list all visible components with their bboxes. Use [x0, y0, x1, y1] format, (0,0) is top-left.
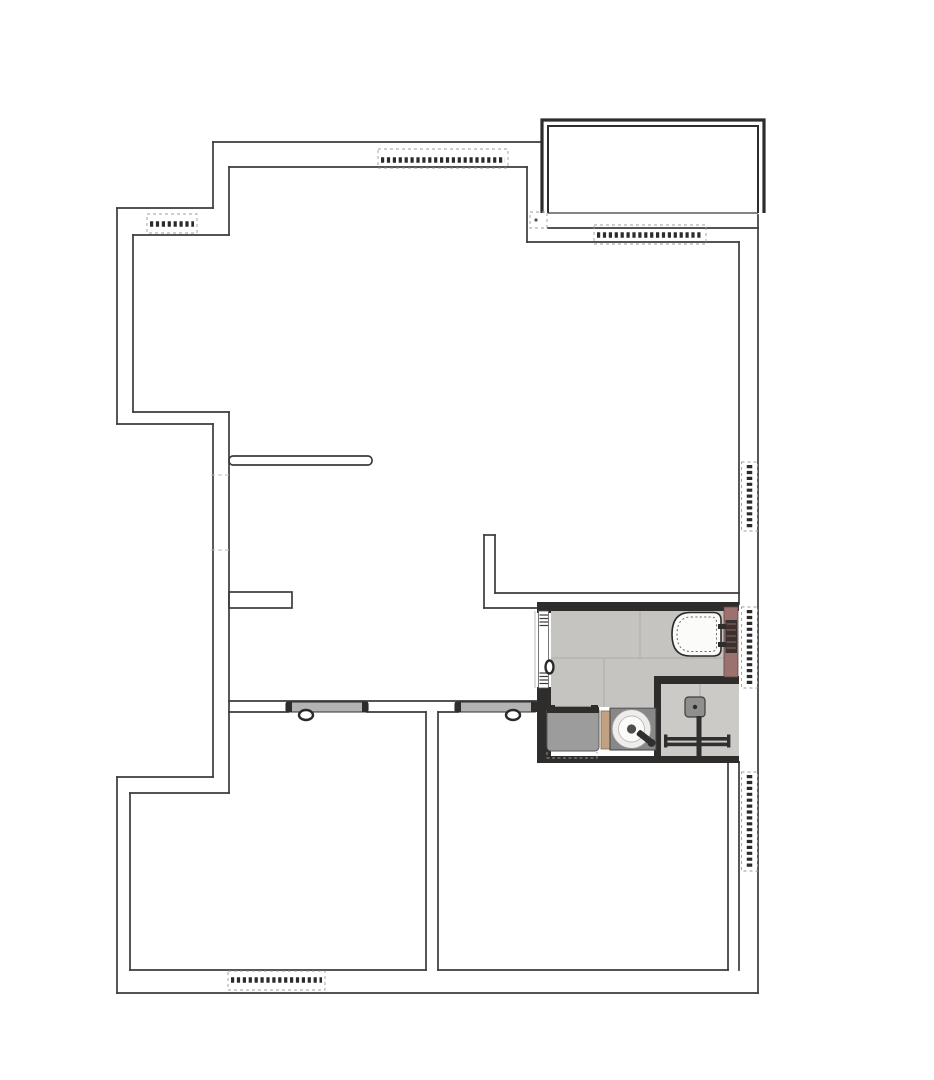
- door-end-cap: [362, 702, 368, 712]
- door-panel[interactable]: [455, 702, 537, 712]
- washing-machine: [547, 707, 599, 751]
- basin-drain: [627, 724, 636, 733]
- door-handle-icon[interactable]: [546, 661, 554, 674]
- door-end-cap: [286, 702, 292, 712]
- floor-plan-canvas: [0, 0, 934, 1080]
- bar-end-bracket: [727, 735, 730, 748]
- wall-joint-marker: [530, 212, 547, 228]
- door-end-cap: [531, 702, 537, 712]
- toilet-bowl: [672, 613, 721, 657]
- door-panel[interactable]: [286, 702, 368, 712]
- annotation-markers: [211, 212, 547, 550]
- window-top-wall: [378, 149, 508, 168]
- bathroom-top-wall-dark-face: [549, 602, 739, 611]
- shower-riser-bar: [697, 716, 702, 756]
- window-right-wall-lower: [742, 772, 758, 871]
- bar-end-bracket: [664, 735, 667, 748]
- floor-plan-drawing: [0, 0, 934, 1080]
- hall-stub-wall: [229, 592, 292, 608]
- door-handle-icon[interactable]: [506, 710, 520, 720]
- window-symbols: [147, 149, 758, 990]
- bathroom-sliding-door[interactable]: [535, 611, 554, 688]
- hall-top-partition: [229, 456, 372, 465]
- window-right-wall-bathroom: [742, 607, 758, 688]
- towel-bar: [666, 743, 728, 747]
- bathroom-bottom-wall: [537, 756, 739, 763]
- wall-joint-dot: [534, 218, 537, 221]
- balcony-wall-outer: [542, 120, 764, 213]
- towel-bar: [666, 737, 728, 741]
- shower-head-center: [693, 705, 697, 709]
- door-end-cap: [455, 702, 461, 712]
- balcony-wall-inner: [548, 126, 758, 213]
- machine-corner-nub: [591, 705, 598, 709]
- sliding-door-left-room[interactable]: [286, 702, 368, 720]
- window-left-step-wall: [147, 214, 197, 233]
- vanity-wood-panel: [601, 711, 610, 749]
- window-right-wall-upper: [742, 462, 758, 531]
- machine-corner-nub: [548, 705, 555, 709]
- balcony: [542, 120, 764, 213]
- door-handle-icon[interactable]: [299, 710, 313, 720]
- window-bottom-wall: [228, 971, 325, 990]
- laundry-and-vanity: [547, 705, 657, 758]
- sliding-door-right-room[interactable]: [455, 702, 537, 720]
